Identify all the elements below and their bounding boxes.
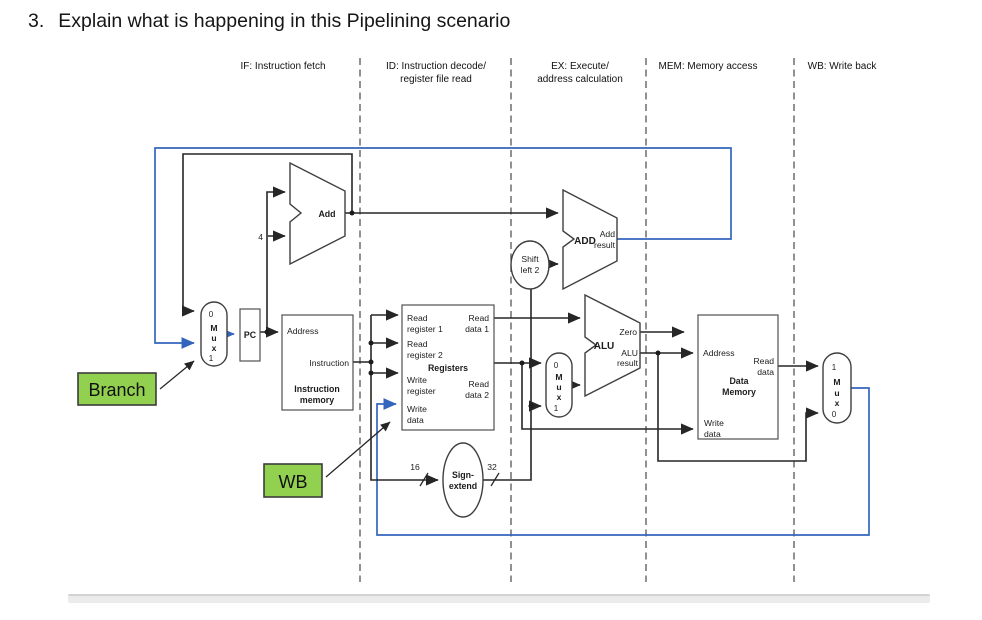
reg-write-data-l1: Write (407, 404, 427, 414)
registers-name: Registers (428, 363, 468, 373)
branch-adder-result-l1: Add (600, 229, 616, 239)
const-4-label: 4 (258, 232, 263, 242)
shift-left-l1: Shift (521, 254, 539, 264)
wb-mux-x: x (835, 398, 840, 408)
reg-read-reg2-l1: Read (407, 339, 428, 349)
stage-label-wb: WB: Write back (808, 61, 878, 72)
pc-mux-u: u (211, 333, 216, 343)
imem-address-label: Address (287, 326, 319, 336)
alu-result-l1: ALU (621, 348, 638, 358)
imem-instruction-label: Instruction (309, 358, 349, 368)
pc-mux-m: M (210, 323, 217, 333)
horizontal-scrollbar[interactable] (68, 594, 930, 603)
stage-label-ex-1: EX: Execute/ (551, 61, 609, 72)
dmem-read-data-l2: data (757, 367, 774, 377)
reg-write-reg-l2: register (407, 386, 436, 396)
alu-zero-label: Zero (619, 327, 637, 337)
branch-adder-label: ADD (574, 236, 596, 247)
dmem-name-2: Memory (722, 387, 756, 397)
branch-adder-result-l2: result (594, 240, 616, 250)
pc-adder-label: Add (318, 209, 335, 219)
pc-label: PC (244, 330, 257, 340)
reg-read-data1-l1: Read (468, 313, 489, 323)
dmem-read-data-l1: Read (753, 356, 774, 366)
slide-page: 3. Explain what is happening in this Pip… (0, 0, 982, 620)
branch-annotation-arrow (160, 361, 194, 389)
reg-read-data2-l2: data 2 (465, 390, 489, 400)
alusrc-mux-0: 0 (554, 361, 559, 370)
bus-width-16: 16 (410, 462, 420, 472)
bus-width-32: 32 (487, 462, 497, 472)
wb-mux-1: 1 (832, 363, 837, 372)
stage-label-if: IF: Instruction fetch (240, 61, 325, 72)
sign-extend-l2: extend (449, 481, 477, 491)
reg-read-reg1-l2: register 1 (407, 324, 443, 334)
reg-write-data-l2: data (407, 415, 424, 425)
stage-label-id-2: register file read (400, 74, 472, 85)
alusrc-mux-1: 1 (554, 404, 559, 413)
dmem-write-data-l2: data (704, 429, 721, 439)
wb-mux-0: 0 (832, 410, 837, 419)
pipeline-datapath-diagram: IF: Instruction fetch ID: Instruction de… (0, 0, 982, 620)
branch-highlight-label: Branch (88, 380, 145, 400)
dmem-address-label: Address (703, 348, 735, 358)
dmem-name-1: Data (729, 376, 748, 386)
wb-mux-u: u (834, 388, 839, 398)
reg-read-data2-l1: Read (468, 379, 489, 389)
reg-read-reg2-l2: register 2 (407, 350, 443, 360)
alu-label: ALU (594, 341, 615, 352)
alusrc-mux-m: M (555, 372, 562, 382)
alusrc-mux-x: x (557, 392, 562, 402)
wb-highlight-label: WB (279, 472, 308, 492)
pc-mux-0: 0 (209, 310, 214, 319)
imem-name-2: memory (300, 395, 334, 405)
imem-name-1: Instruction (294, 384, 339, 394)
sign-extend-oval (443, 443, 483, 517)
wb-annotation-arrow (326, 422, 390, 477)
dmem-write-data-l1: Write (704, 418, 724, 428)
stage-label-ex-2: address calculation (537, 74, 623, 85)
alu-result-l2: result (617, 358, 639, 368)
stage-label-mem: MEM: Memory access (659, 61, 758, 72)
stage-label-id-1: ID: Instruction decode/ (386, 61, 486, 72)
wire-pc-to-adder (267, 192, 285, 332)
alusrc-mux-u: u (556, 382, 561, 392)
reg-read-reg1-l1: Read (407, 313, 428, 323)
pc-mux-x: x (212, 343, 217, 353)
pc-mux-1: 1 (209, 354, 214, 363)
shift-left-l2: left 2 (521, 265, 540, 275)
sign-extend-l1: Sign- (452, 470, 474, 480)
wb-mux-m: M (833, 377, 840, 387)
reg-write-reg-l1: Write (407, 375, 427, 385)
reg-read-data1-l2: data 1 (465, 324, 489, 334)
